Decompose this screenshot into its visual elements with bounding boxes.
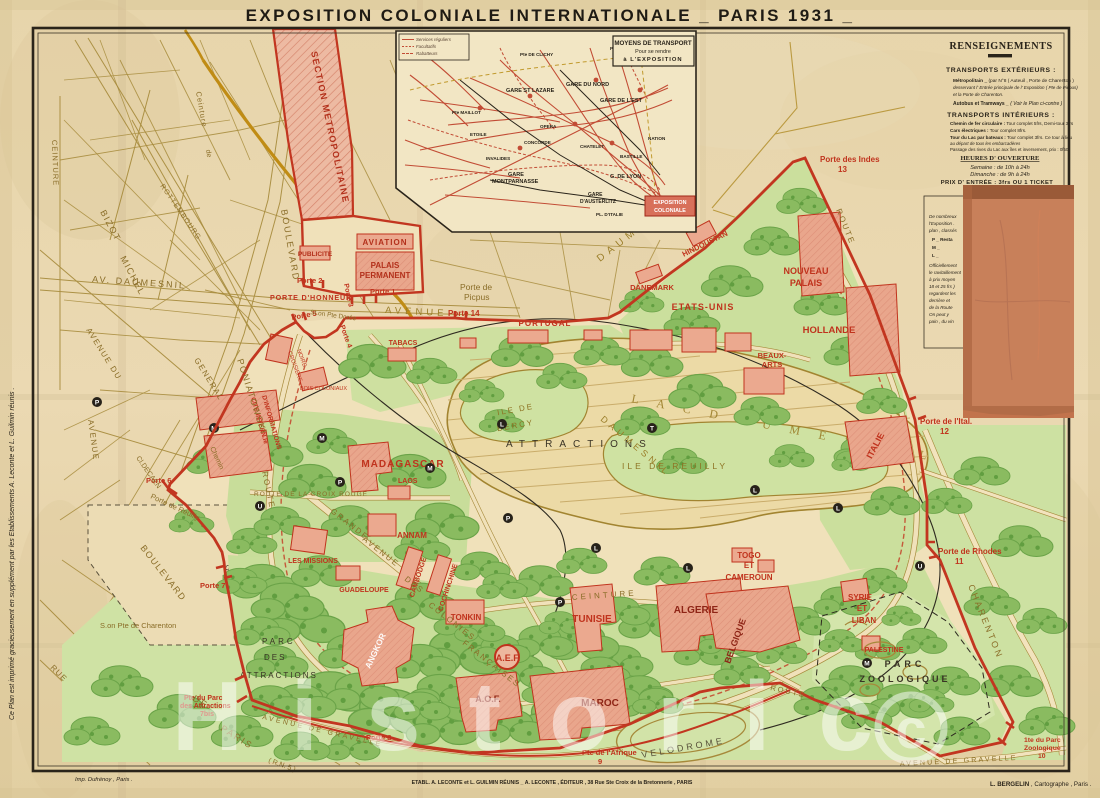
svg-text:ETABL. A. LECONTE et L. GUIL: ETABL. A. LECONTE et L. GUILMIN RÉUNIS _… bbox=[412, 778, 693, 786]
svg-text:PERMANENT: PERMANENT bbox=[360, 271, 411, 280]
svg-text:Historic: Historic bbox=[172, 661, 921, 771]
svg-text:EXPOSITION COLONIALE INTERNATI: EXPOSITION COLONIALE INTERNATIONALE _ PA… bbox=[246, 6, 855, 25]
svg-text:CEINTURE: CEINTURE bbox=[50, 140, 61, 187]
svg-text:PALAIS: PALAIS bbox=[371, 261, 400, 270]
svg-text:ALGERIE: ALGERIE bbox=[674, 605, 719, 616]
svg-text:GARE: GARE bbox=[508, 172, 524, 178]
svg-text:T: T bbox=[650, 426, 654, 433]
svg-text:de: de bbox=[204, 149, 212, 158]
svg-text:Zoologique: Zoologique bbox=[1024, 745, 1061, 752]
svg-text:G. DE LYON: G. DE LYON bbox=[610, 174, 641, 180]
svg-text:Semaine : de 10h à 24h: Semaine : de 10h à 24h bbox=[970, 165, 1029, 171]
svg-text:INVALIDES: INVALIDES bbox=[486, 156, 510, 161]
svg-text:M: M bbox=[427, 466, 432, 473]
svg-text:AVIATION: AVIATION bbox=[362, 238, 407, 247]
svg-text:Dimanche : de 9h à 24h: Dimanche : de 9h à 24h bbox=[970, 172, 1029, 178]
svg-text:à prix moyen: à prix moyen bbox=[929, 277, 956, 282]
svg-text:U: U bbox=[258, 504, 263, 511]
svg-text:S.on Pte de Charenton: S.on Pte de Charenton bbox=[100, 621, 176, 630]
svg-text:1te du Parc: 1te du Parc bbox=[1024, 737, 1061, 744]
svg-text:NATION: NATION bbox=[648, 136, 666, 141]
svg-text:L: L bbox=[753, 488, 757, 495]
svg-text:M _: M _ bbox=[932, 245, 940, 250]
svg-text:Services réguliers: Services réguliers bbox=[416, 37, 452, 42]
svg-text:Porte 14: Porte 14 bbox=[448, 309, 480, 318]
svg-text:desservant l' Entrée principal: desservant l' Entrée principale de l' Ex… bbox=[953, 85, 1078, 90]
svg-text:RENSEIGNEMENTS: RENSEIGNEMENTS bbox=[949, 41, 1052, 52]
svg-text:Imp. Dufrénoy , Paris .: Imp. Dufrénoy , Paris . bbox=[75, 777, 133, 783]
svg-text:L: L bbox=[836, 506, 840, 513]
svg-text:PL. D'ITALIE: PL. D'ITALIE bbox=[596, 212, 623, 217]
svg-text:Tour du Lac par bateaux : Tour: Tour du Lac par bateaux : Tour complet 3… bbox=[950, 135, 1073, 140]
svg-text:ETOILE: ETOILE bbox=[470, 132, 487, 137]
svg-text:L. BERGELIN , Cartographe , Pa: L. BERGELIN , Cartographe , Paris . bbox=[990, 781, 1092, 788]
svg-text:P: P bbox=[338, 480, 343, 487]
svg-text:le ravitaillement: le ravitaillement bbox=[929, 270, 962, 275]
svg-text:et la Porte de Charenton.: et la Porte de Charenton. bbox=[953, 92, 1003, 97]
svg-text:ARTS: ARTS bbox=[762, 360, 782, 369]
svg-text:au départ de tous les embarcad: au départ de tous les embarcadères bbox=[950, 141, 1021, 146]
svg-text:Porte 1: Porte 1 bbox=[370, 287, 395, 296]
svg-text:Pour se rendre: Pour se rendre bbox=[635, 49, 671, 55]
svg-text:TABACS: TABACS bbox=[389, 340, 418, 347]
svg-text:Autobus et Tramways _ ( Voir l: Autobus et Tramways _ ( Voir le Plan ci-… bbox=[953, 101, 1063, 107]
svg-text:11: 11 bbox=[955, 557, 964, 566]
svg-text:D'AUSTERLITZ: D'AUSTERLITZ bbox=[580, 199, 616, 205]
svg-text:ANNAM: ANNAM bbox=[397, 531, 427, 540]
svg-text:LAOS: LAOS bbox=[398, 478, 418, 485]
svg-text:Porte des Indes: Porte des Indes bbox=[820, 155, 880, 164]
svg-text:EXPOSITION: EXPOSITION bbox=[654, 200, 687, 206]
svg-text:Rabatteurs: Rabatteurs bbox=[416, 51, 438, 56]
svg-text:PORTE D'HONNEUR: PORTE D'HONNEUR bbox=[270, 293, 352, 302]
svg-text:13: 13 bbox=[838, 165, 847, 174]
svg-text:Pte DE CLICHY: Pte DE CLICHY bbox=[520, 52, 553, 57]
svg-text:plan , classés: plan , classés bbox=[928, 228, 958, 233]
svg-text:GUADELOUPE: GUADELOUPE bbox=[339, 587, 389, 594]
svg-text:L _: L _ bbox=[932, 253, 939, 258]
svg-text:pain , du vin: pain , du vin bbox=[928, 319, 954, 324]
svg-text:L: L bbox=[686, 566, 690, 573]
svg-text:ILE DE REUILLY: ILE DE REUILLY bbox=[622, 461, 728, 471]
svg-text:TOGO: TOGO bbox=[737, 551, 760, 560]
svg-text:OPERA: OPERA bbox=[540, 124, 557, 129]
svg-text:L: L bbox=[594, 546, 598, 553]
svg-text:l'Exposition .: l'Exposition . bbox=[929, 221, 955, 226]
svg-text:TRANSPORTS EXTÉRIEURS :: TRANSPORTS EXTÉRIEURS : bbox=[946, 65, 1056, 74]
svg-text:On peut y: On peut y bbox=[929, 312, 950, 317]
svg-text:P: P bbox=[95, 400, 100, 407]
svg-text:c: c bbox=[895, 697, 926, 760]
svg-text:CONCORDE: CONCORDE bbox=[524, 140, 551, 145]
svg-text:Pte MAILLOT: Pte MAILLOT bbox=[452, 110, 481, 115]
svg-text:Porte de: Porte de bbox=[460, 282, 492, 292]
svg-text:Officiellement: Officiellement bbox=[929, 263, 958, 268]
svg-text:NOUVEAU: NOUVEAU bbox=[783, 266, 828, 276]
svg-text:Porte 7: Porte 7 bbox=[200, 581, 225, 590]
svg-text:P: P bbox=[506, 516, 511, 523]
svg-text:CAMEROUN: CAMEROUN bbox=[725, 573, 772, 582]
svg-text:BASTILLE: BASTILLE bbox=[620, 154, 642, 159]
svg-text:Picpus: Picpus bbox=[464, 292, 490, 302]
svg-text:Métropolitain _ (par N°8 ( Aut: Métropolitain _ (par N°8 ( Auteuil , Por… bbox=[953, 78, 1074, 84]
svg-text:12: 12 bbox=[940, 427, 949, 436]
svg-text:ETATS-UNIS: ETATS-UNIS bbox=[672, 302, 735, 312]
svg-text:CHATELET: CHATELET bbox=[580, 144, 604, 149]
svg-text:BEAUX-: BEAUX- bbox=[758, 351, 787, 360]
svg-text:Ce Plan est imprimé gracieusem: Ce Plan est imprimé gracieusement en sup… bbox=[9, 388, 16, 720]
svg-text:TRANSPORTS INTÉRIEURS :: TRANSPORTS INTÉRIEURS : bbox=[947, 110, 1055, 119]
svg-text:ROUTE DE LA CROIX ROUGE: ROUTE DE LA CROIX ROUGE bbox=[254, 491, 368, 498]
svg-text:MOYENS DE TRANSPORT: MOYENS DE TRANSPORT bbox=[614, 40, 692, 47]
svg-text:P: P bbox=[558, 600, 563, 607]
svg-text:Cars électriques : Tour comple: Cars électriques : Tour complet 8frs. bbox=[950, 128, 1026, 133]
svg-text:ET: ET bbox=[857, 604, 867, 613]
svg-text:HOLLANDE: HOLLANDE bbox=[803, 325, 856, 336]
svg-text:LIBAN: LIBAN bbox=[852, 616, 877, 625]
svg-text:GARE DU NORD: GARE DU NORD bbox=[566, 82, 609, 88]
svg-text:Porte de l'Ital.: Porte de l'Ital. bbox=[920, 417, 972, 426]
svg-text:HEURES D' OUVERTURE: HEURES D' OUVERTURE bbox=[961, 155, 1041, 162]
svg-text:Porte de Rhodes: Porte de Rhodes bbox=[938, 547, 1002, 556]
svg-text:derrière et: derrière et bbox=[929, 298, 951, 303]
svg-text:SYRIE: SYRIE bbox=[848, 593, 873, 602]
svg-text:L: L bbox=[500, 422, 504, 429]
svg-text:de la Route: de la Route bbox=[929, 305, 953, 310]
svg-text:Facultatifs: Facultatifs bbox=[416, 44, 437, 49]
svg-text:PRIX D' ENTRÉE : 3frs OU 1: PRIX D' ENTRÉE : 3frs OU 1 TICKET bbox=[941, 178, 1054, 186]
svg-text:regardent les: regardent les bbox=[929, 291, 957, 296]
svg-text:TUNISIE: TUNISIE bbox=[572, 614, 612, 625]
svg-text:18 et 25 frs ): 18 et 25 frs ) bbox=[929, 284, 955, 289]
svg-text:à L'EXPOSITION: à L'EXPOSITION bbox=[623, 57, 682, 63]
svg-text:PARC: PARC bbox=[262, 637, 296, 646]
svg-text:P _ Resta: P _ Resta bbox=[932, 237, 953, 242]
svg-text:GARE DE L'EST: GARE DE L'EST bbox=[600, 98, 643, 104]
svg-text:MONTPARNASSE: MONTPARNASSE bbox=[492, 179, 539, 185]
svg-text:Chemin de fer circulaire : Tou: Chemin de fer circulaire : Tour complet … bbox=[950, 121, 1074, 126]
svg-text:U: U bbox=[918, 564, 923, 571]
svg-text:M: M bbox=[319, 436, 324, 443]
svg-text:10: 10 bbox=[1038, 753, 1046, 760]
svg-text:GARE ST LAZARE: GARE ST LAZARE bbox=[506, 88, 555, 94]
svg-text:De nombreux: De nombreux bbox=[929, 214, 957, 219]
svg-text:LES MISSIONS: LES MISSIONS bbox=[288, 558, 338, 565]
svg-text:GARE: GARE bbox=[588, 192, 603, 198]
svg-text:PALAIS: PALAIS bbox=[790, 278, 822, 288]
svg-text:PUBLICITE: PUBLICITE bbox=[298, 251, 333, 258]
svg-text:BOIS COLONIAUX: BOIS COLONIAUX bbox=[300, 386, 347, 392]
svg-text:ET: ET bbox=[744, 561, 754, 570]
svg-text:COLONIALE: COLONIALE bbox=[654, 208, 686, 214]
svg-text:PALESTINE: PALESTINE bbox=[865, 647, 904, 654]
svg-text:Passage des rives du Lac aux î: Passage des rives du Lac aux îles et inv… bbox=[950, 147, 1069, 152]
